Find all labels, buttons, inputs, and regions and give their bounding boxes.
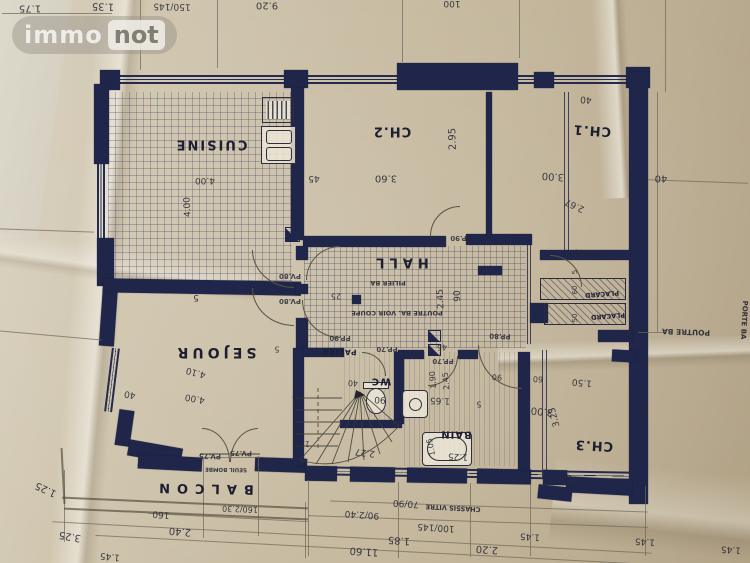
dimension-label: 2.40 <box>168 525 191 538</box>
dimension-label: 1.25 <box>34 479 59 498</box>
dimension-label: 3.25 <box>58 529 82 544</box>
dimension-label: 40 <box>636 404 649 415</box>
floor-plan: CUISINECH.2CH.1HALLSEJOURWCBAINBALCONCH.… <box>0 0 750 563</box>
dimension-label: 11.60 <box>349 545 378 558</box>
dimension-label: 3.00 <box>542 170 565 183</box>
dimension-label: 4.00 <box>184 391 205 404</box>
dimension-label: 4.00 <box>182 197 193 218</box>
dimension-label: 90 <box>492 372 503 382</box>
dimension-label: 1.50 <box>572 376 593 388</box>
dimension-label: 9.20 <box>256 0 278 11</box>
dimension-label: 1.85 <box>388 534 411 547</box>
dimension-label: 40 <box>580 94 592 105</box>
dimension-label: 100 <box>443 0 460 8</box>
dimension-label: 1.25 <box>448 450 469 461</box>
dimension-label: 5 <box>476 400 481 409</box>
dimension-label: 45 <box>560 471 571 481</box>
dimension-label: 40 <box>348 378 358 387</box>
dimension-label: 90/2.40 <box>344 508 379 520</box>
dimension-label: 1.45 <box>520 530 541 541</box>
dimension-label: 1.65 <box>430 395 450 406</box>
dimension-label: 90 <box>374 394 386 404</box>
dimension-label: 2.95 <box>447 128 459 151</box>
dimension-label: 3.60 <box>375 173 397 184</box>
dimension-label: 40 <box>655 173 668 184</box>
floor-plan-photo: CUISINECH.2CH.1HALLSEJOURWCBAINBALCONCH.… <box>0 0 750 563</box>
dimension-label: 1.45 <box>721 543 742 554</box>
dimension-label: 90 <box>453 290 464 302</box>
dimension-label: 2.27 <box>354 446 375 458</box>
dimension-label: 100/145 <box>417 521 455 534</box>
dimension-label: 1.45 <box>635 535 656 546</box>
dimension-label: 1.45 <box>100 550 121 562</box>
watermark-immo-text: immo <box>24 21 103 49</box>
dimension-label: 1.75 <box>292 437 311 448</box>
dimension-label: 40 <box>123 388 136 400</box>
dimension-label: 60 <box>533 374 544 384</box>
dimension-label: 4.00 <box>195 175 215 185</box>
dimension-label: 160 <box>152 508 170 519</box>
watermark-not-text: not <box>108 20 165 50</box>
dimension-label: 70/90 <box>393 497 420 509</box>
dimension-label: 4.10 <box>185 365 207 380</box>
dimension-label: 1.90 <box>428 371 439 390</box>
dimension-label: 60 <box>571 285 580 295</box>
dimension-label: 5 <box>193 292 199 302</box>
dimension-label: 1.05 <box>425 437 438 456</box>
dimension-label: 2.67 <box>564 196 586 214</box>
dimension-label: 45 <box>308 173 319 183</box>
dimension-labels-layer: 1.751.35150/1459.201004.004.00453.602.95… <box>0 0 750 563</box>
dimension-label: 45 <box>292 393 303 403</box>
dimension-label: 5 <box>485 172 491 182</box>
dimension-label: 2.45 <box>441 372 452 391</box>
dimension-label: 160/2.30 <box>222 504 258 514</box>
dimension-label: 25 <box>331 292 341 301</box>
dimension-label: 50 <box>571 313 580 323</box>
immonot-watermark: immo not <box>12 16 177 54</box>
dimension-label: 1.35 <box>92 0 115 12</box>
dimension-label: 5 <box>274 345 279 354</box>
dimension-label: 2.20 <box>476 543 499 556</box>
dimension-label: 3.25 <box>548 406 563 428</box>
dimension-label: 1.75 <box>19 3 41 14</box>
dimension-label: 2.45 <box>435 289 446 310</box>
dimension-label: 45 <box>437 343 447 352</box>
dimension-label: 150/145 <box>153 1 191 12</box>
dimension-label: 5 <box>571 269 579 274</box>
